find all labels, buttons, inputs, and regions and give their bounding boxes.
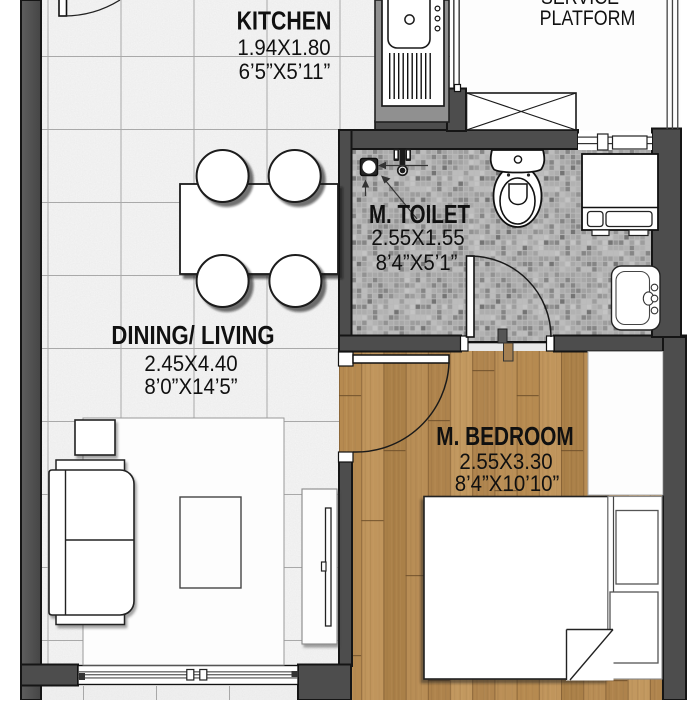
svg-text:2.45X4.40: 2.45X4.40 xyxy=(144,351,237,376)
svg-text:6’5”X5’11”: 6’5”X5’11” xyxy=(239,59,331,84)
svg-text:8’0”X14’5”: 8’0”X14’5” xyxy=(144,374,237,399)
svg-text:PLATFORM: PLATFORM xyxy=(540,7,636,31)
svg-text:DINING/ LIVING: DINING/ LIVING xyxy=(111,321,274,350)
svg-text:M. BEDROOM: M. BEDROOM xyxy=(436,422,573,451)
svg-text:8’4”X10’10”: 8’4”X10’10” xyxy=(455,471,560,496)
svg-text:8’4”X5’1”: 8’4”X5’1” xyxy=(376,250,458,275)
svg-text:1.94X1.80: 1.94X1.80 xyxy=(237,35,330,60)
svg-text:KITCHEN: KITCHEN xyxy=(237,7,332,37)
svg-text:2.55X1.55: 2.55X1.55 xyxy=(371,225,464,250)
svg-text:M. TOILET: M. TOILET xyxy=(369,200,471,229)
